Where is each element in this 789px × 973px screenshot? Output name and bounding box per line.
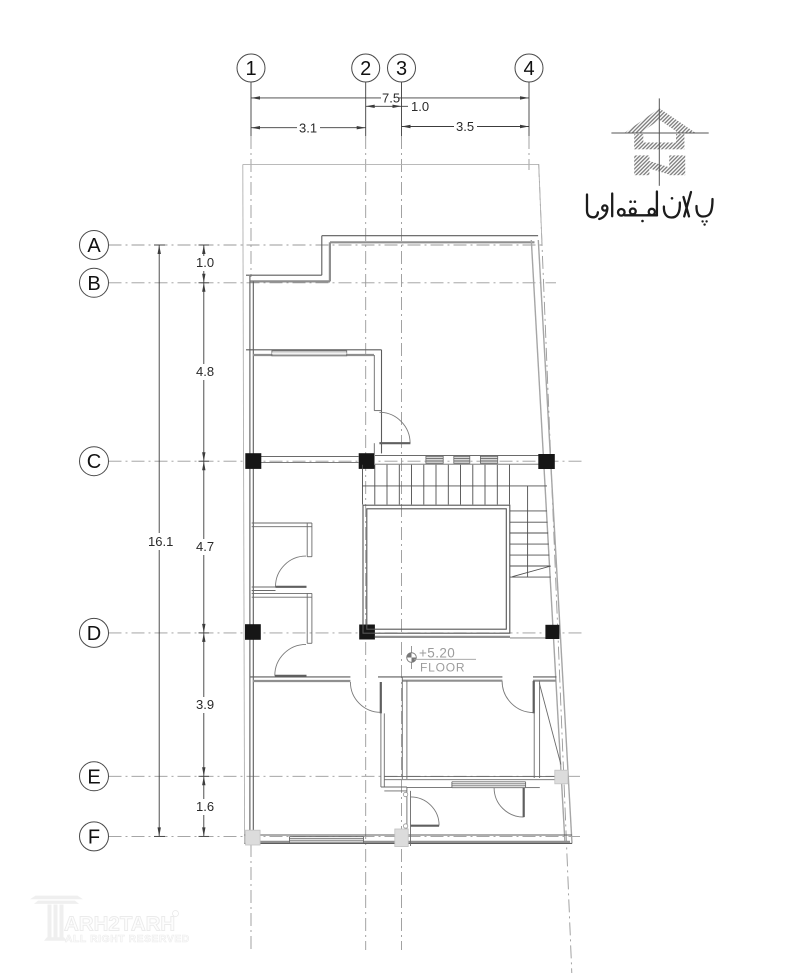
svg-text:ALL RIGHT RESERVED: ALL RIGHT RESERVED (65, 934, 190, 945)
svg-text:4: 4 (523, 58, 534, 80)
svg-text:B: B (87, 273, 100, 295)
svg-text:C: C (87, 451, 101, 473)
svg-text:1: 1 (245, 58, 256, 80)
svg-text:3.1: 3.1 (299, 120, 317, 135)
svg-text:3: 3 (396, 58, 407, 80)
svg-text:3.5: 3.5 (456, 119, 474, 134)
svg-text:1.0: 1.0 (196, 255, 214, 270)
svg-text:7.5: 7.5 (382, 91, 400, 106)
svg-text:1.6: 1.6 (196, 799, 214, 814)
svg-text:ARH2TARH: ARH2TARH (64, 913, 175, 936)
svg-text:1.0: 1.0 (411, 99, 429, 114)
svg-text:+5.20: +5.20 (419, 646, 455, 661)
svg-text:FLOOR: FLOOR (420, 661, 465, 675)
svg-text:16.1: 16.1 (148, 534, 173, 549)
svg-text:4.8: 4.8 (196, 364, 214, 379)
svg-text:2: 2 (360, 58, 371, 80)
svg-text:F: F (88, 826, 100, 848)
svg-text:4.7: 4.7 (196, 539, 214, 554)
svg-text:3.9: 3.9 (196, 697, 214, 712)
svg-text:E: E (87, 766, 100, 788)
svg-text:A: A (87, 235, 101, 257)
svg-text:D: D (87, 623, 101, 645)
